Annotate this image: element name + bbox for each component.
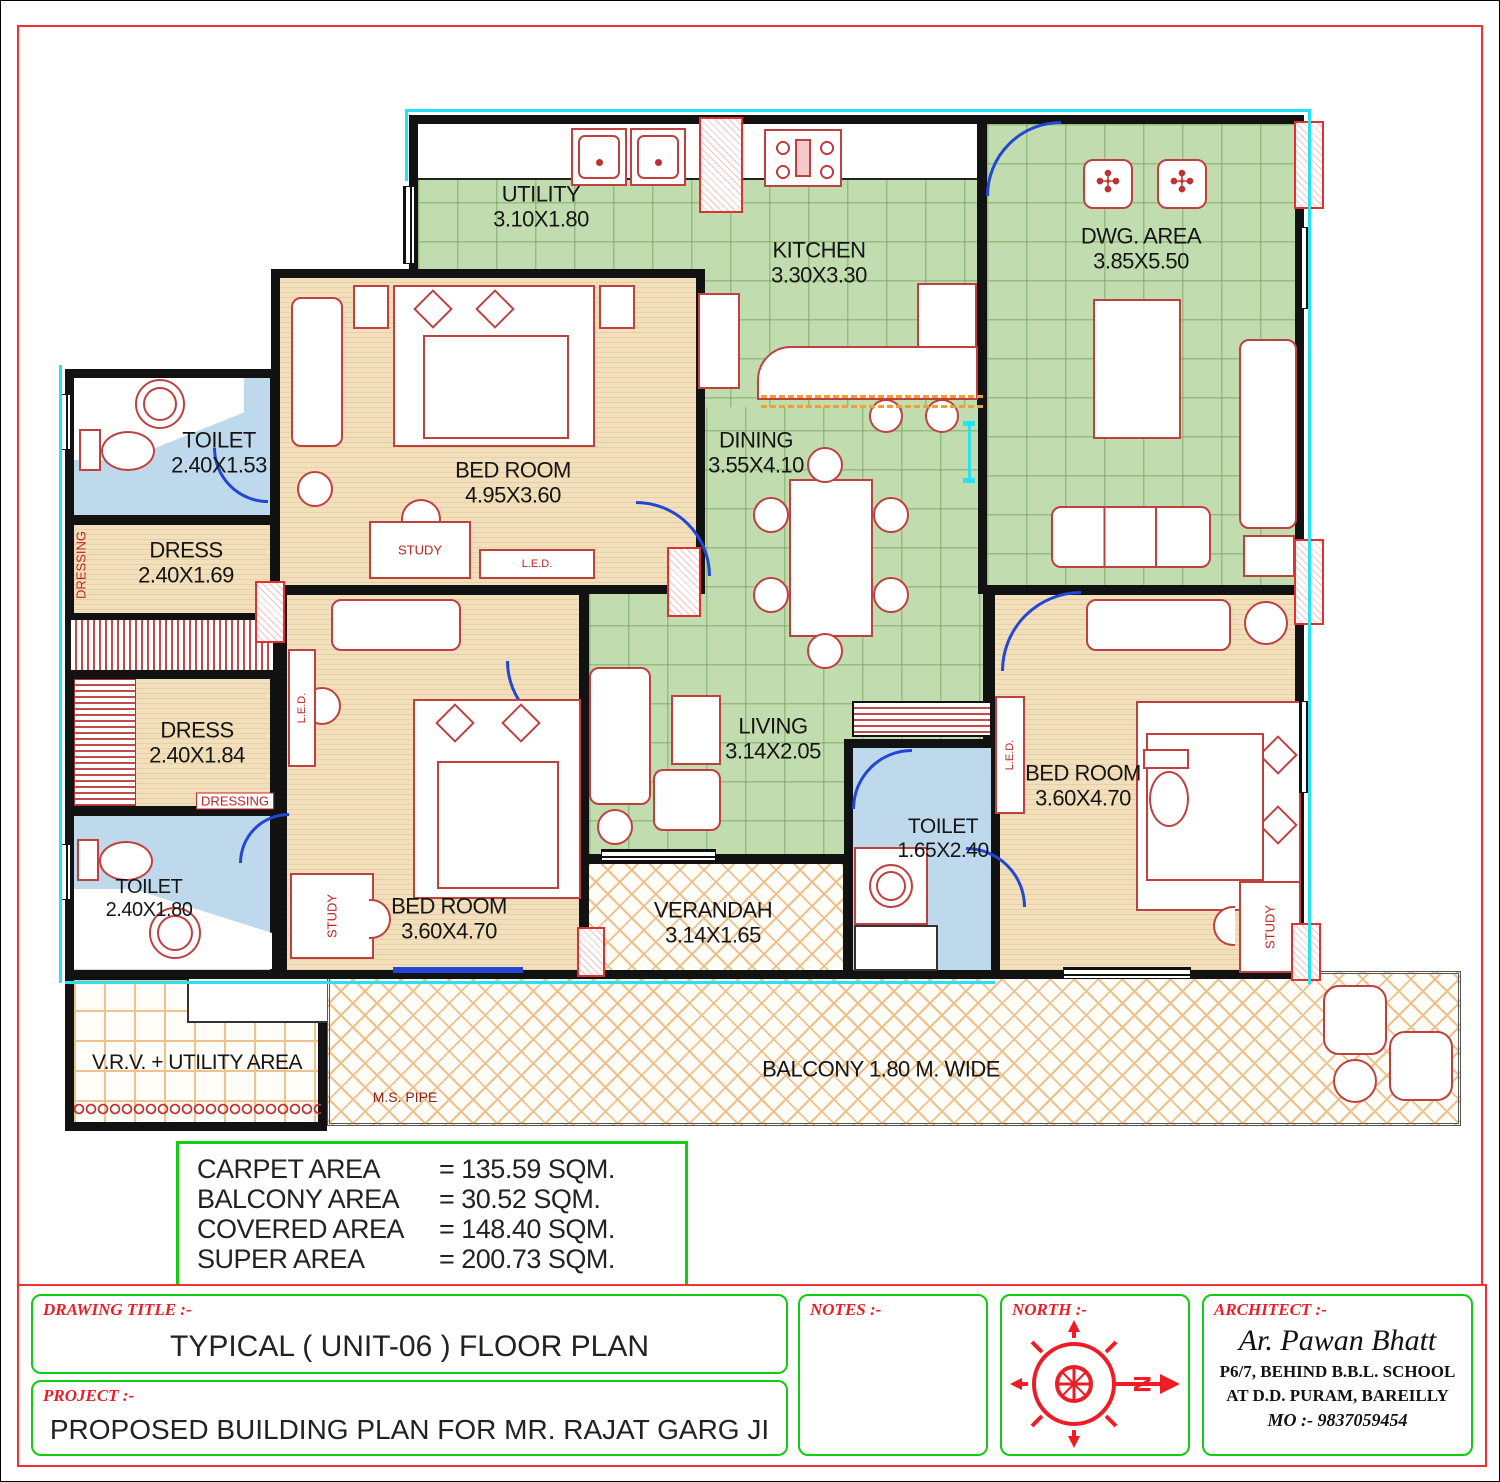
room-name: DWG. AREA: [1081, 224, 1201, 249]
project-label: PROJECT :-: [43, 1386, 134, 1406]
ms-pipe-row: [73, 1103, 321, 1115]
kitchen-pillar: [699, 117, 743, 213]
dining-chair: [753, 577, 789, 613]
area-label: COVERED AREA: [197, 1214, 439, 1244]
wc-bowl: [101, 431, 155, 471]
label-toilet-1: TOILET 2.40X1.53: [171, 428, 267, 479]
pillow: [435, 703, 475, 743]
ceiling-fan-icon: [1157, 159, 1207, 209]
pillow: [475, 289, 515, 329]
area-row: BALCONY AREA = 30.52 SQM.: [197, 1184, 677, 1214]
area-label: SUPER AREA: [197, 1244, 439, 1274]
label-bedroom-1: BED ROOM 4.95X3.60: [455, 458, 571, 509]
label-dressing-box: DRESSING: [196, 793, 274, 810]
area-row: SUPER AREA = 200.73 SQM.: [197, 1244, 677, 1274]
room-balcony: [327, 971, 1461, 1126]
label-verandah: VERANDAH 3.14X1.65: [654, 898, 772, 949]
label-toilet-2: TOILET 2.40X1.80: [106, 876, 193, 922]
architect-address-2: AT D.D. PURAM, BAREILLY: [1204, 1386, 1471, 1406]
dwg-sofa-bottom: [1051, 506, 1211, 568]
notes-box: NOTES :-: [798, 1294, 988, 1456]
outline-accent: [405, 109, 1310, 112]
wash-basin: [135, 379, 185, 429]
wardrobe-band: [65, 614, 279, 678]
stool: [1244, 601, 1288, 645]
bed: [413, 699, 581, 899]
wc-bowl: [99, 841, 153, 881]
label-study: STUDY: [1263, 905, 1278, 949]
room-name: BED ROOM: [391, 894, 507, 919]
kitchen-cabinet: [698, 293, 740, 389]
kitchen-sink-left: [571, 128, 627, 186]
shower-tray: [854, 925, 938, 971]
room-name: VERANDAH: [654, 898, 772, 923]
living-side-table: [671, 695, 721, 765]
kitchen-breakfast-counter: [757, 346, 978, 400]
wc-tank: [79, 429, 101, 471]
stool: [297, 471, 333, 507]
north-box: NORTH :-: [1000, 1294, 1190, 1456]
kitchen-counter: [418, 124, 977, 180]
title-block: DRAWING TITLE :- TYPICAL ( UNIT-06 ) FLO…: [17, 1284, 1487, 1467]
window-sill: [393, 967, 523, 973]
architect-label: ARCHITECT :-: [1214, 1300, 1327, 1320]
room-dim: 3.55X4.10: [708, 453, 804, 478]
counter-dash-line: [761, 395, 983, 398]
balcony-table: [1333, 1059, 1377, 1103]
label-dress-1: DRESS 2.40X1.69: [138, 538, 234, 589]
architect-mobile: MO :- 9837059454: [1204, 1410, 1471, 1431]
area-summary-box: CARPET AREA = 135.59 SQM. BALCONY AREA =…: [176, 1141, 688, 1295]
project-text: PROPOSED BUILDING PLAN FOR MR. RAJAT GAR…: [33, 1414, 786, 1446]
label-bedroom-3: BED ROOM 3.60X4.70: [1025, 761, 1141, 812]
bed-sheet: [437, 761, 559, 889]
room-name: TOILET: [106, 876, 193, 899]
north-letter: N: [1128, 1375, 1155, 1392]
bedside-table: [353, 285, 389, 329]
room-dim: 3.14X2.05: [725, 739, 821, 764]
living-round-table: [597, 809, 633, 845]
column-pillar: [577, 927, 605, 977]
area-row: COVERED AREA = 148.40 SQM.: [197, 1214, 677, 1244]
pillow: [413, 289, 453, 329]
room-name: DRESS: [149, 718, 245, 743]
dwg-sofa-right: [1239, 339, 1297, 529]
room-name: TOILET: [171, 428, 267, 453]
pillow: [1258, 805, 1298, 845]
outline-accent: [65, 981, 995, 984]
bedside-table: [599, 285, 635, 329]
architect-address-1: P6/7, BEHIND B.B.L. SCHOOL: [1204, 1362, 1471, 1382]
area-label: CARPET AREA: [197, 1154, 439, 1184]
bedroom3-sofa: [1086, 599, 1231, 651]
label-led: L.E.D.: [1004, 740, 1016, 771]
bedroom1-sofa: [291, 297, 343, 447]
label-led: L.E.D.: [522, 558, 553, 570]
label-study: STUDY: [325, 894, 340, 938]
room-dim: 2.40X1.69: [138, 563, 234, 588]
room-dim: 2.40X1.84: [149, 743, 245, 768]
dining-chair: [807, 633, 843, 669]
dwg-side-table: [1243, 535, 1295, 577]
pillow: [1258, 735, 1298, 775]
architect-box: ARCHITECT :- Ar. Pawan Bhatt P6/7, BEHIN…: [1202, 1294, 1473, 1456]
drawing-title-label: DRAWING TITLE :-: [43, 1300, 192, 1320]
label-dressing-vert: DRESSING: [74, 531, 89, 599]
room-name: BED ROOM: [1025, 761, 1141, 786]
outline-accent: [405, 109, 408, 181]
architect-name: Ar. Pawan Bhatt: [1204, 1324, 1471, 1358]
plumbing-riser-icon: [963, 421, 975, 483]
room-name: LIVING: [725, 714, 821, 739]
label-balcony: BALCONY 1.80 M. WIDE: [762, 1056, 1000, 1081]
room-dim: 4.95X3.60: [455, 483, 571, 508]
dwg-center-table: [1093, 299, 1181, 439]
room-dim: 3.14X1.65: [654, 923, 772, 948]
bed-sheet: [423, 335, 569, 439]
room-dim: 3.60X4.70: [1025, 786, 1141, 811]
living-armchair: [653, 769, 721, 831]
window: [601, 849, 716, 861]
living-sofa: [589, 667, 651, 805]
project-box: PROJECT :- PROPOSED BUILDING PLAN FOR MR…: [31, 1380, 788, 1456]
notes-label: NOTES :-: [810, 1300, 881, 1320]
label-living: LIVING 3.14X2.05: [725, 714, 821, 765]
room-dim: 3.85X5.50: [1081, 249, 1201, 274]
window: [1063, 967, 1191, 979]
balcony-chair: [1389, 1031, 1453, 1101]
room-dim: 3.60X4.70: [391, 919, 507, 944]
outline-accent: [59, 365, 62, 983]
dress2-wardrobe: [74, 679, 136, 806]
wc-bowl: [1149, 771, 1189, 827]
label-vrv: V.R.V. + UTILITY AREA: [92, 1051, 302, 1075]
area-value: = 200.73 SQM.: [439, 1244, 615, 1274]
balcony-chair: [1323, 985, 1387, 1055]
label-utility: UTILITY 3.10X1.80: [493, 182, 589, 233]
drawing-title-box: DRAWING TITLE :- TYPICAL ( UNIT-06 ) FLO…: [31, 1294, 788, 1374]
dining-chair: [873, 497, 909, 533]
room-name: V.R.V. + UTILITY AREA: [92, 1051, 302, 1075]
dining-chair: [753, 497, 789, 533]
room-name: TOILET: [897, 815, 988, 839]
north-label: NORTH :-: [1012, 1300, 1087, 1320]
column-pillar: [255, 581, 285, 643]
label-ms-pipe: M.S. PIPE: [373, 1089, 438, 1105]
kitchen-sink-right: [630, 128, 686, 186]
area-value: = 148.40 SQM.: [439, 1214, 615, 1244]
dining-chair: [873, 577, 909, 613]
room-dim: 2.40X1.53: [171, 453, 267, 478]
room-name: BED ROOM: [455, 458, 571, 483]
area-row: CARPET AREA = 135.59 SQM.: [197, 1154, 677, 1184]
kitchen-stove: [764, 129, 842, 187]
counter-dash-line: [761, 405, 983, 408]
room-name: BALCONY 1.80 M. WIDE: [762, 1056, 1000, 1081]
label-dress-2: DRESS 2.40X1.84: [149, 718, 245, 769]
room-dim: 3.10X1.80: [493, 207, 589, 232]
area-value: = 30.52 SQM.: [439, 1184, 600, 1214]
floor-plan-sheet: UTILITY 3.10X1.80 KITCHEN 3.30X3.30 DWG.…: [0, 0, 1500, 1482]
label-dining: DINING 3.55X4.10: [708, 428, 804, 479]
dining-table: [789, 479, 873, 637]
column-pillar: [1291, 923, 1321, 981]
drawing-title-text: TYPICAL ( UNIT-06 ) FLOOR PLAN: [33, 1330, 786, 1364]
wc-tank: [77, 839, 99, 881]
room-dim: 2.40X1.80: [106, 899, 193, 922]
area-value: = 135.59 SQM.: [439, 1154, 615, 1184]
room-name: KITCHEN: [771, 238, 867, 263]
dining-chair: [807, 447, 843, 483]
room-name: DINING: [708, 428, 804, 453]
label-kitchen: KITCHEN 3.30X3.30: [771, 238, 867, 289]
toilet3-ledge: [852, 701, 992, 737]
area-label: BALCONY AREA: [197, 1184, 439, 1214]
label-bedroom-2: BED ROOM 3.60X4.70: [391, 894, 507, 945]
label-study: STUDY: [398, 543, 442, 558]
room-dim: 1.65X2.40: [897, 839, 988, 863]
label-dwg: DWG. AREA 3.85X5.50: [1081, 224, 1201, 275]
north-compass-icon: N: [1002, 1320, 1188, 1450]
label-toilet-3: TOILET 1.65X2.40: [897, 815, 988, 863]
label-led: L.E.D.: [296, 693, 308, 724]
ceiling-fan-icon: [1083, 159, 1133, 209]
outline-accent: [1308, 109, 1311, 984]
wc-tank: [1143, 749, 1189, 769]
pillow: [501, 703, 541, 743]
bedroom2-sofa: [331, 599, 461, 651]
room-name: UTILITY: [493, 182, 589, 207]
room-dim: 3.30X3.30: [771, 263, 867, 288]
bed: [393, 285, 595, 447]
window: [403, 186, 415, 264]
room-name: DRESS: [138, 538, 234, 563]
